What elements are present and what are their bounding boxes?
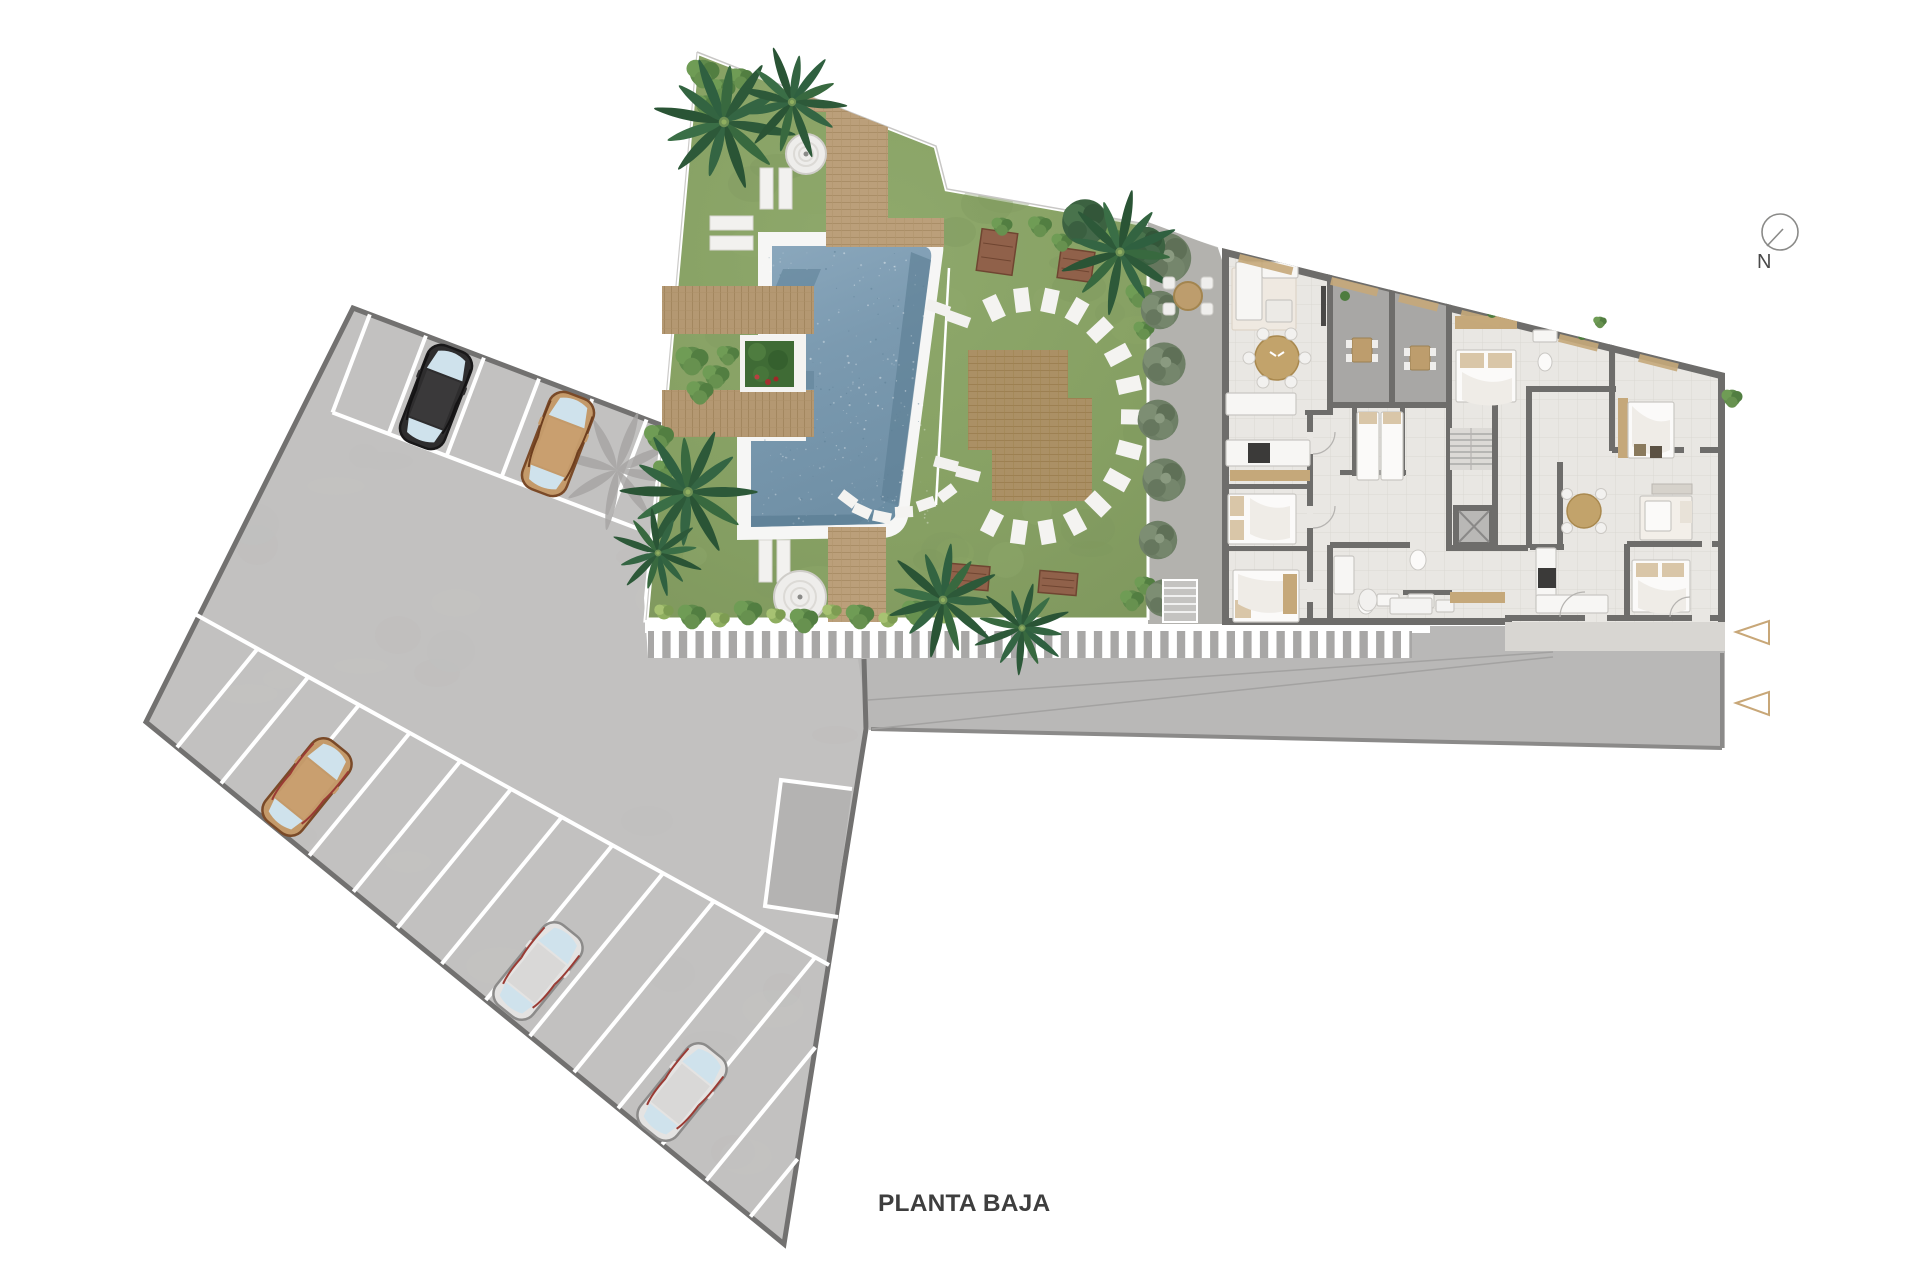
svg-text:N: N: [1757, 251, 1771, 273]
svg-text:PLANTA BAJA: PLANTA BAJA: [878, 1190, 1050, 1217]
